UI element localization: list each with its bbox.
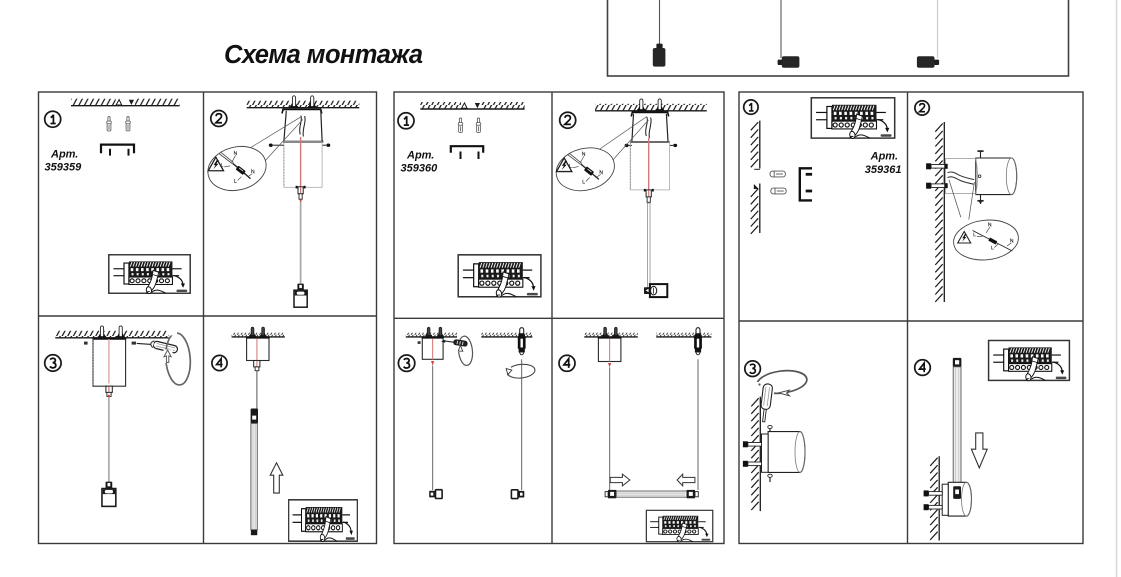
- svg-text:Схема монтажа: Схема монтажа: [224, 41, 423, 69]
- svg-text:359360: 359360: [401, 163, 439, 175]
- svg-text:Арт.: Арт.: [406, 150, 434, 162]
- svg-text:Арт.: Арт.: [870, 151, 898, 163]
- svg-text:359361: 359361: [865, 164, 902, 176]
- svg-text:Арт.: Арт.: [50, 149, 78, 161]
- svg-text:359359: 359359: [45, 162, 83, 174]
